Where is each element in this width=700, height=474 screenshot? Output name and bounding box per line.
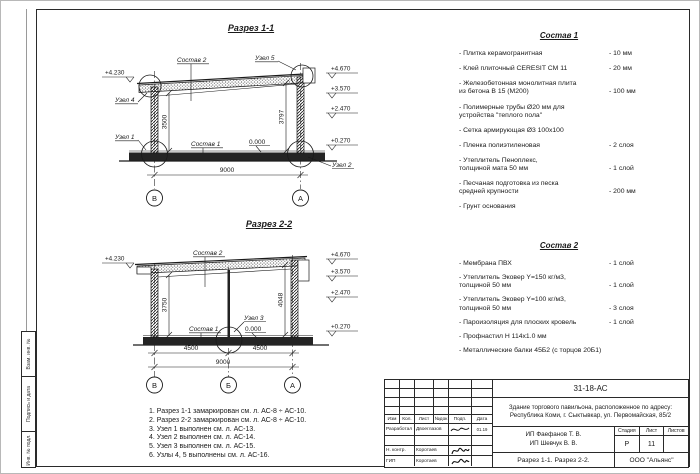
- label-uzel5: Узел 5: [254, 55, 275, 62]
- label-uzel2: Узел 2: [331, 162, 352, 169]
- note-line: 5. Узел 3 выполнен см. л. АС-15.: [149, 443, 399, 452]
- elev-2470: +2.470: [331, 106, 351, 113]
- drawing-title: Разрез 1-1. Разрез 2-2.: [493, 453, 615, 468]
- signature-row-ncontrol: Н. контр. Коротаев: [385, 446, 492, 456]
- elev-3570: +3.570: [331, 269, 351, 276]
- side-box-inv: Инв. № подл.: [21, 431, 36, 468]
- col-izm: Изм: [385, 415, 400, 424]
- dimensions: 3750 4048 4500 4500 9000: [148, 262, 299, 370]
- person-name: Двоеглазов: [415, 424, 449, 436]
- axis-letter-v: В: [152, 381, 157, 390]
- elev-4670: +4.670: [331, 252, 351, 259]
- title-block-signature-table: Изм Кол. Лист №док Подп. Дата Разработал…: [385, 380, 492, 467]
- sheet-number: 11: [640, 436, 665, 452]
- person-name: Коротаев: [415, 456, 449, 466]
- label-uzel3: Узел 3: [243, 315, 264, 322]
- stage-table: Стадия Лист Листов Р 11: [615, 427, 688, 452]
- section-1-1-drawing: 3500 3797 9000 В А Состав 2 Узел 5 Узел …: [39, 51, 459, 223]
- composition-2-list: Состав 2 - Мембрана ПВХ - 1 слой - Утепл…: [459, 241, 659, 361]
- elev-0270: +0.270: [331, 324, 351, 331]
- date: [472, 456, 492, 466]
- elev-0270: +0.270: [331, 138, 351, 145]
- signature: [449, 446, 472, 456]
- change-row-empty: [385, 407, 492, 415]
- change-row-empty: [385, 389, 492, 398]
- elev-3570: +3.570: [331, 86, 351, 93]
- sheet-label: Лист: [640, 427, 665, 436]
- note-line: 2. Разрез 2-2 замаркирован см. л. АС-8 ÷…: [149, 417, 399, 426]
- comp-item: - Металлические балки 45Б2 (с торцов 20Б…: [459, 347, 659, 355]
- col-list: Лист: [415, 415, 434, 424]
- label-zero-level: 0.000: [245, 326, 262, 333]
- label-sostav2: Состав 2: [193, 250, 223, 257]
- clients: ИП Фаефанов Т. В. ИП Шевчук В. В.: [493, 427, 615, 452]
- signature-row-developer: Разработал Двоеглазов 01.19: [385, 424, 492, 436]
- side-label-inv: Инв. № подл.: [26, 434, 32, 465]
- stage-value-row: Р 11: [615, 436, 688, 452]
- section-2-2-title: Разрез 2-2: [214, 219, 324, 229]
- comp-item: - Утеплитель Пеноплекс, толщиной мата 50…: [459, 157, 659, 173]
- label-zero-level: 0.000: [249, 139, 266, 146]
- notes-list: 1. Разрез 1-1 замаркирован см. л. АС-8 ÷…: [149, 408, 399, 461]
- comp-item: - Грунт основания: [459, 203, 659, 211]
- label-sostav1: Состав 1: [191, 141, 221, 148]
- comp-item: - Пароизоляция для плоских кровель - 1 с…: [459, 319, 659, 327]
- signature: [449, 424, 472, 436]
- dim-width: 9000: [220, 167, 235, 174]
- signature: [449, 456, 472, 466]
- composition-2-title: Состав 2: [459, 241, 659, 250]
- elev-2470: +2.470: [331, 290, 351, 297]
- role: Разработал: [385, 424, 415, 436]
- elev-4670: +4.670: [331, 66, 351, 73]
- label-sostav2: Состав 2: [177, 57, 207, 64]
- note-line: 4. Узел 2 выполнен см. л. АС-14.: [149, 434, 399, 443]
- comp-item: - Профнастил Н 114х1.0 мм: [459, 333, 659, 341]
- note-line: 1. Разрез 1-1 замаркирован см. л. АС-8 ÷…: [149, 408, 399, 417]
- elev-4230: +4.230: [105, 70, 125, 77]
- side-label-vzam: Взам. инв. №: [26, 339, 32, 370]
- drawing-sheet: Взам. инв. № Подпись и дата Инв. № подл.…: [0, 0, 700, 474]
- comp-item: - Пленка полиэтиленовая - 2 слоя: [459, 142, 659, 150]
- comp-item: - Сетка армирующая Ø3 100х100: [459, 127, 659, 135]
- col-podp: Подп.: [449, 415, 472, 424]
- section-1-1-title: Разрез 1-1: [196, 23, 306, 33]
- dim-width: 9000: [216, 359, 231, 366]
- company-name: ООО "Альянс": [615, 453, 688, 468]
- side-attribute-column: Взам. инв. № Подпись и дата Инв. № подл.: [21, 331, 36, 468]
- elev-4230: +4.230: [105, 256, 125, 263]
- client-line: ИП Шевчук В. В.: [530, 440, 578, 449]
- col-data: Дата: [472, 415, 492, 424]
- side-label-podpis: Подпись и дата: [26, 386, 32, 422]
- axis-bubbles: В Б А: [147, 377, 301, 393]
- axis-letter-v: В: [152, 194, 157, 203]
- drawing-title-row: Разрез 1-1. Разрез 2-2. ООО "Альянс": [493, 453, 688, 468]
- signature-row-empty: [385, 436, 492, 446]
- sheets-label: Листов: [664, 427, 688, 436]
- title-block-main: 31-18-АС Здание торгового павильона, рас…: [492, 380, 688, 467]
- comp-item: - Утеплитель Эковер Y=150 кг/м3, толщино…: [459, 274, 659, 290]
- building-section: [119, 68, 337, 161]
- side-box-vzam: Взам. инв. №: [21, 331, 36, 377]
- comp-item: - Утеплитель Эковер Y=100 кг/м3, толщино…: [459, 296, 659, 312]
- stage-value: Р: [615, 436, 640, 452]
- dim-height-right: 4048: [278, 292, 285, 307]
- side-box-podpis: Подпись и дата: [21, 376, 36, 432]
- note-line: 3. Узел 1 выполнен см. л. АС-13.: [149, 426, 399, 435]
- change-row-empty: [385, 398, 492, 407]
- drawing-labels: Состав 2 Узел 5 Узел 4 Узел 1 Состав 1 0…: [114, 55, 354, 169]
- axis-bubbles: В А: [147, 190, 309, 206]
- signature-row-gip: ГИП Коротаев: [385, 456, 492, 466]
- col-kol: Кол.: [400, 415, 415, 424]
- object-description: Здание торгового павильона, расположенно…: [493, 398, 688, 427]
- label-sostav1: Состав 1: [189, 326, 219, 333]
- date: 01.19: [472, 424, 492, 436]
- title-block: Изм Кол. Лист №док Подп. Дата Разработал…: [384, 379, 689, 468]
- dim-height-left: 3750: [162, 297, 169, 312]
- comp-item: - Мембрана ПВХ - 1 слой: [459, 260, 659, 268]
- axis-letter-a: А: [298, 194, 303, 203]
- role: Н. контр.: [385, 446, 415, 456]
- col-ndoc: №док: [434, 415, 449, 424]
- change-row-empty: [385, 380, 492, 389]
- person-name: Коротаев: [415, 446, 449, 456]
- date: [472, 446, 492, 456]
- comp-item: - Клей плиточный CERESIT CM 11 - 20 мм: [459, 65, 659, 73]
- signature-scribble: [450, 425, 470, 434]
- signature-header-row: Изм Кол. Лист №док Подп. Дата: [385, 415, 492, 424]
- composition-1-title: Состав 1: [459, 31, 659, 40]
- comp-item: - Полимерные трубы Ø20 мм для устройства…: [459, 104, 659, 120]
- left-margin-line: [26, 9, 27, 331]
- signature-scribble: [450, 446, 470, 455]
- comp-item: - Железобетонная монолитная плита из бет…: [459, 80, 659, 96]
- sheets-total: [664, 436, 688, 452]
- stage-label: Стадия: [615, 427, 640, 436]
- client-line: ИП Фаефанов Т. В.: [526, 431, 582, 440]
- composition-1-list: Состав 1 - Плитка керамогранитная - 10 м…: [459, 31, 659, 218]
- document-number: 31-18-АС: [493, 380, 688, 398]
- dim-height-right: 3797: [279, 109, 286, 124]
- dim-height-left: 3500: [162, 114, 169, 129]
- axis-letter-b: Б: [226, 381, 231, 390]
- label-uzel4: Узел 4: [114, 97, 135, 104]
- stage-header-row: Стадия Лист Листов: [615, 427, 688, 436]
- signature-scribble: [450, 457, 470, 466]
- axis-letter-a: А: [290, 381, 295, 390]
- client-stage-row: ИП Фаефанов Т. В. ИП Шевчук В. В. Стадия…: [493, 427, 688, 453]
- comp-item: - Песчаная подготовка из песка средней к…: [459, 180, 659, 196]
- dim-span2: 4500: [253, 345, 268, 352]
- role: ГИП: [385, 456, 415, 466]
- label-uzel1: Узел 1: [114, 134, 135, 141]
- comp-item: - Плитка керамогранитная - 10 мм: [459, 50, 659, 58]
- dim-span1: 4500: [184, 345, 199, 352]
- note-line: 6. Узлы 4, 5 выполнены см. л. АС-16.: [149, 452, 399, 461]
